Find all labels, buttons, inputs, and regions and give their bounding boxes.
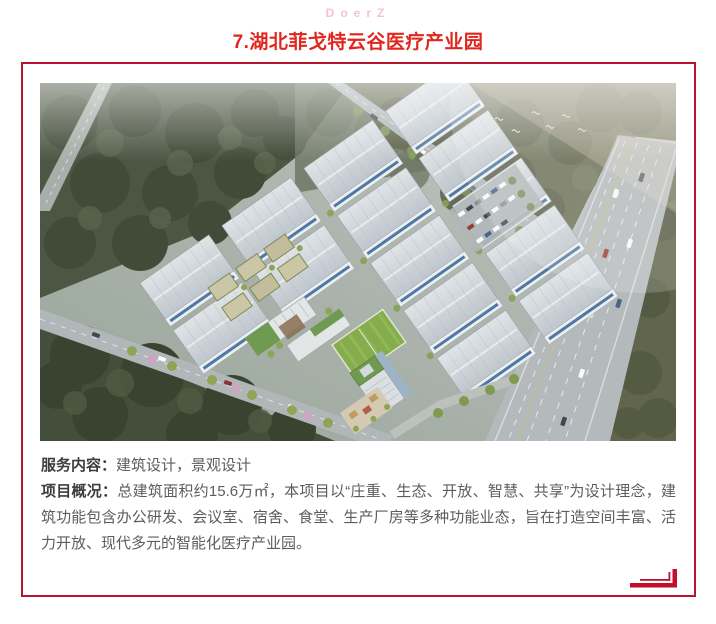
- corner-frame-icon: [628, 566, 680, 590]
- service-text: 建筑设计，景观设计: [116, 457, 251, 474]
- overview-label: 项目概况：: [41, 483, 117, 500]
- service-label: 服务内容：: [41, 457, 116, 474]
- overview-line: 项目概况：总建筑面积约15.6万㎡，本项目以“庄重、生态、开放、智慧、共享”为设…: [41, 479, 676, 557]
- project-description: 服务内容：建筑设计，景观设计 项目概况：总建筑面积约15.6万㎡，本项目以“庄重…: [41, 453, 676, 557]
- brand-watermark: DoerZ: [0, 6, 716, 20]
- aerial-rendering-image: [40, 83, 676, 441]
- overview-text: 总建筑面积约15.6万㎡，本项目以“庄重、生态、开放、智慧、共享”为设计理念，建…: [41, 483, 676, 552]
- page-title: 7.湖北菲戈特云谷医疗产业园: [0, 27, 716, 54]
- page: { "header": { "brand": "DoerZ", "brand_c…: [0, 0, 716, 624]
- project-card: 服务内容：建筑设计，景观设计 项目概况：总建筑面积约15.6万㎡，本项目以“庄重…: [21, 62, 696, 597]
- aerial-rendering-graphic: [40, 83, 676, 441]
- service-line: 服务内容：建筑设计，景观设计: [41, 453, 676, 479]
